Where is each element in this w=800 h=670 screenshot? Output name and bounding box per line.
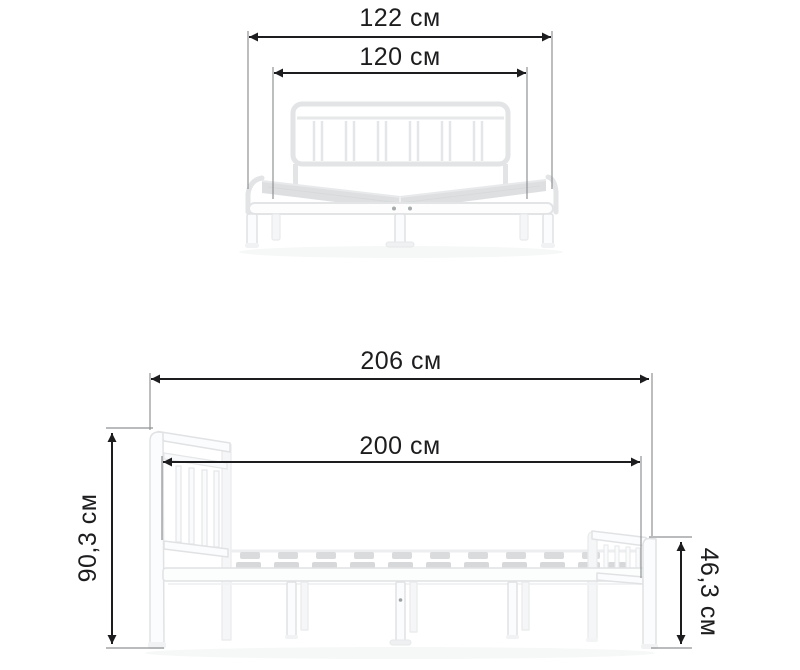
side-footboard-far-post	[588, 532, 597, 640]
front-bed-floor-shadow	[239, 246, 563, 258]
dim-label-122: 122 см	[359, 4, 440, 32]
side-footboard-top-rail	[592, 531, 646, 546]
side-headboard	[148, 432, 231, 649]
dim-label-200: 200 см	[359, 432, 440, 460]
dim-label-46: 46,3 см	[695, 548, 723, 637]
diagram-svg: 122 см 120 см 206 см 200 см 90,3 см 46,3…	[0, 0, 800, 670]
dimension-footboard-height: 46,3 см	[681, 542, 723, 644]
side-deck-slats	[231, 551, 641, 570]
side-footboard-near-post	[643, 538, 656, 648]
dim-label-120: 120 см	[359, 43, 440, 71]
dimension-headboard-height: 90,3 см	[74, 433, 112, 644]
dim-label-206: 206 см	[360, 347, 441, 375]
side-bed-floor-shadow	[145, 647, 655, 659]
front-bed-legs	[245, 214, 555, 248]
front-view-dimensions: 122 см 120 см	[249, 4, 551, 73]
side-main-rail	[163, 568, 649, 581]
side-headboard-slats	[176, 466, 219, 547]
bolt-icon	[392, 207, 396, 211]
bed-dimensions-diagram: 122 см 120 см 206 см 200 см 90,3 см 46,3…	[0, 0, 800, 670]
dim-label-90: 90,3 см	[74, 494, 102, 583]
bolt-icon	[399, 598, 403, 602]
bolt-icon	[408, 207, 412, 211]
dimension-outer-length: 206 см	[151, 347, 649, 379]
front-cross-rail	[249, 203, 553, 214]
dimension-inner-width: 120 см	[274, 43, 526, 73]
side-view-bed	[145, 432, 658, 660]
dimension-inner-length: 200 см	[163, 432, 640, 462]
side-bed-legs	[285, 582, 529, 645]
front-headboard	[293, 104, 508, 186]
dimension-outer-width: 122 см	[249, 4, 551, 37]
front-view-bed	[239, 104, 563, 258]
